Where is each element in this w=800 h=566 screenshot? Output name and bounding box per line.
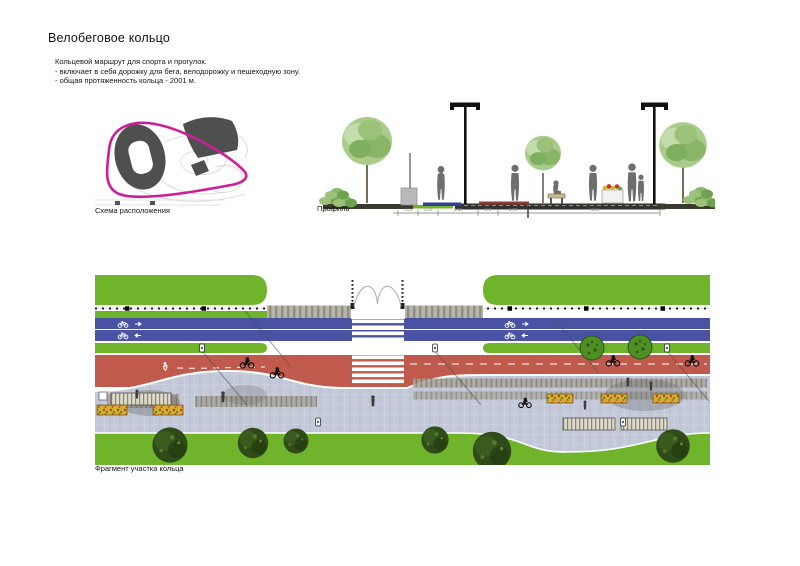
- median-strip-left: [95, 343, 267, 353]
- tree: [152, 427, 187, 462]
- description-line: - общая протяженность кольца - 2001 м.: [55, 76, 385, 86]
- profile-drawing: 1.00 1.50 3.50 0.5 2.00 12.0: [315, 95, 715, 220]
- scheme-map: [95, 112, 265, 212]
- flower-planter: [97, 405, 127, 415]
- lamp-post-marker: [316, 418, 321, 426]
- pedestrian-icon: [221, 391, 225, 402]
- zebra-crossing: [351, 303, 405, 383]
- bike-path-section: [423, 203, 461, 207]
- description-line: - включает в себя дорожку для бега, вело…: [55, 67, 385, 77]
- profile-caption: Профиль: [317, 204, 349, 213]
- running-track-section: [479, 202, 529, 205]
- flower-planter: [602, 184, 623, 203]
- tree: [284, 429, 309, 454]
- pedestrian-icon: [627, 378, 630, 387]
- lamp-post-marker: [200, 344, 205, 352]
- svg-text:1.00: 1.00: [404, 207, 413, 212]
- tree: [238, 428, 268, 458]
- street-lamp: [450, 103, 480, 205]
- flower-planter: [547, 394, 573, 403]
- tree: [421, 426, 448, 453]
- pedestrian-icon: [650, 382, 653, 391]
- tree: [342, 117, 392, 203]
- lamp-post-marker: [665, 344, 670, 352]
- bench: [548, 194, 565, 204]
- shelter-bench: [563, 418, 615, 430]
- pedestrian-figure: [589, 165, 597, 201]
- child-figure: [638, 175, 644, 201]
- plan-drawing: [95, 275, 710, 465]
- svg-text:2.00: 2.00: [509, 207, 518, 212]
- flower-planter: [653, 394, 679, 403]
- pedestrian-figure: [511, 165, 519, 201]
- svg-text:3.50: 3.50: [454, 207, 463, 212]
- utility-cabinet: [401, 188, 417, 205]
- lamp-post-marker: [621, 418, 626, 426]
- pedestrian-icon: [584, 401, 587, 410]
- sitting-figure: [553, 180, 561, 194]
- presentation-board: Велобеговое кольцо Кольцевой маршрут для…: [0, 0, 800, 566]
- road-markers: [115, 201, 155, 205]
- grass-verge: [95, 311, 267, 318]
- svg-text:0.5: 0.5: [485, 207, 491, 212]
- page-description: Кольцевой маршрут для спорта и прогулок.…: [55, 57, 385, 86]
- flower-planter: [153, 405, 183, 415]
- tree: [628, 335, 652, 359]
- lamp-post-marker: [433, 344, 438, 352]
- pedestrian-icon: [136, 390, 139, 399]
- tree: [656, 429, 690, 463]
- plan-caption: Фрагмент участка кольца: [95, 464, 184, 473]
- runner-figure: [437, 166, 445, 200]
- pedestrian-icon: [371, 395, 375, 406]
- page-title: Велобеговое кольцо: [48, 31, 170, 45]
- adult-figure: [628, 163, 637, 201]
- flower-planter: [601, 394, 627, 403]
- shelter-bench: [621, 418, 667, 430]
- grass-top-right: [483, 275, 710, 305]
- tree: [580, 336, 604, 360]
- svg-text:12.0: 12.0: [591, 207, 600, 212]
- scheme-caption: Схема расположения: [95, 206, 170, 215]
- grass-top-left: [95, 275, 267, 305]
- svg-text:1.50: 1.50: [424, 207, 433, 212]
- description-line: Кольцевой маршрут для спорта и прогулок.: [55, 57, 385, 67]
